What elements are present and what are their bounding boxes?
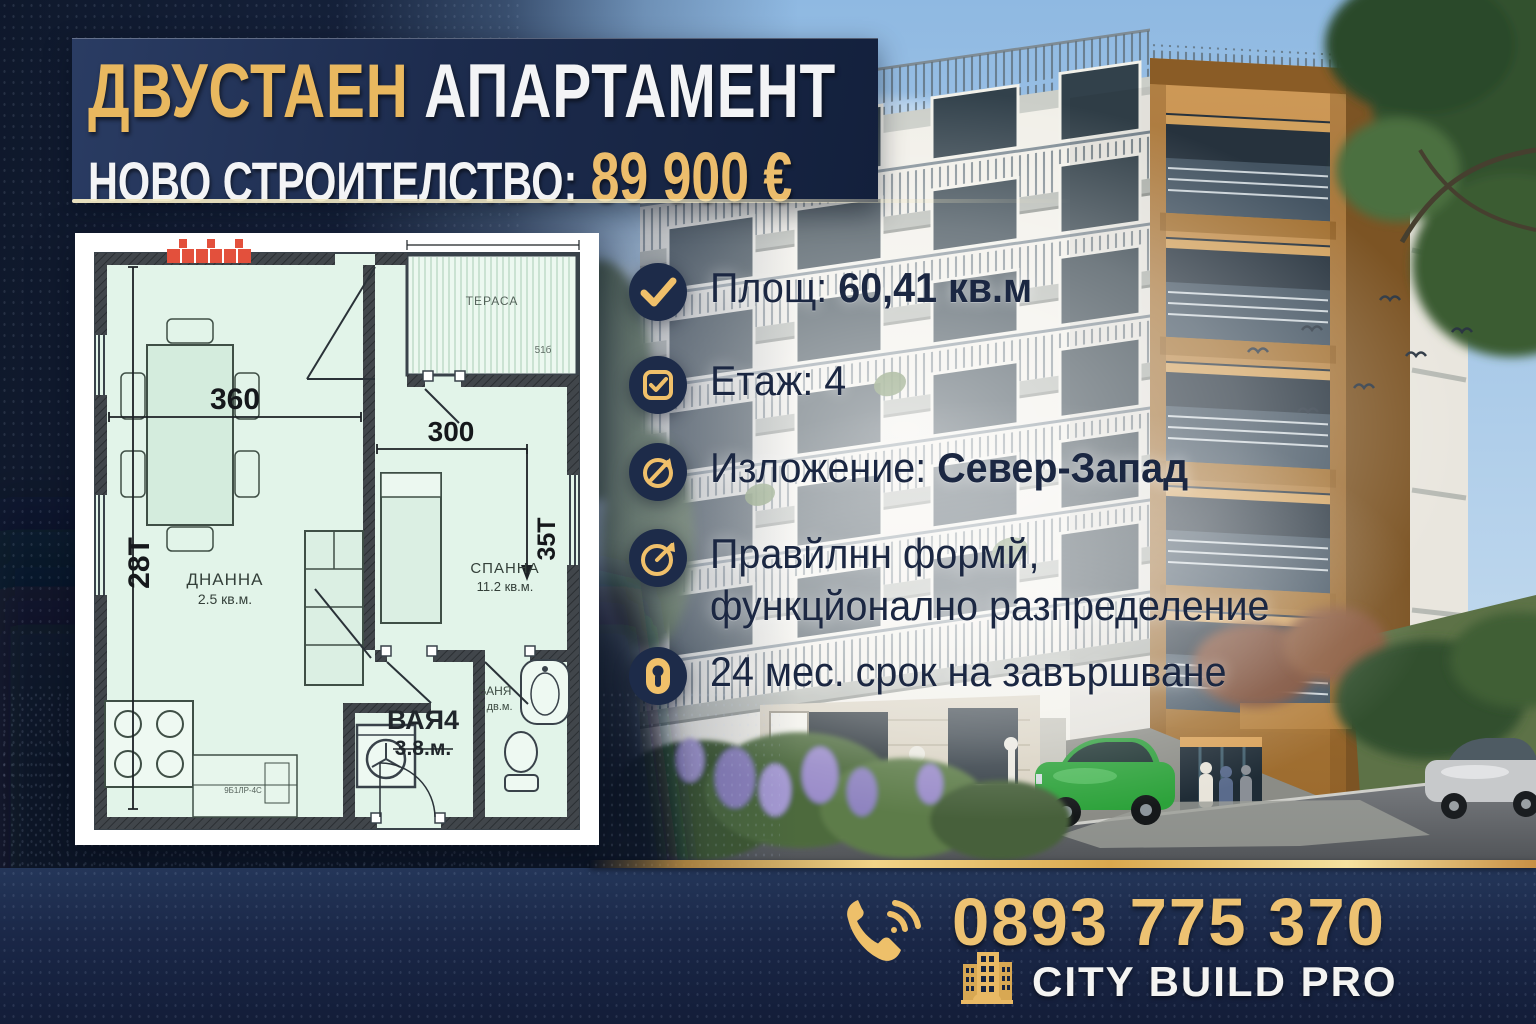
bath-label: БАНЯ — [479, 684, 512, 698]
gold-streak-divider — [72, 199, 1072, 203]
feature-floor-label: Етаж: 4 — [710, 357, 846, 404]
balcony-label: ТЕРАСА — [466, 294, 519, 308]
dim-360: 360 — [210, 383, 260, 416]
company-name: CITY BUILD PRO — [1032, 958, 1398, 1006]
header-band: ДВУСТАЕН АПАРТАМЕНТ НОВО СТРОИТЕЛСТВО: 8… — [72, 38, 878, 202]
sofa — [305, 531, 363, 685]
footer-gold-divider — [590, 860, 1536, 868]
phone-icon — [838, 888, 934, 980]
building-logo-icon — [955, 946, 1019, 1010]
feature-completion: 24 мес. срок на завършване — [628, 646, 1260, 706]
kitchen-code-label: 9Б1ЛР-4С — [224, 786, 262, 795]
feature-exposure: Изложение: Север-Запад — [628, 442, 1219, 502]
feature-exposure-label: Изложение: — [710, 444, 926, 491]
feature-floor: Етаж: 4 — [628, 355, 855, 415]
bedroom-area: 11.2 кв.м. — [477, 579, 534, 594]
bedroom-label: СПАННА — [470, 560, 539, 577]
feature-exposure-value: Север-Запад — [937, 444, 1188, 491]
page-title: ДВУСТАЕН АПАРТАМЕНТ — [88, 49, 696, 135]
real-estate-ad-poster: ДВУСТАЕН АПАРТАМЕНТ НОВО СТРОИТЕЛСТВО: 8… — [0, 0, 1536, 1024]
living-room-label: ДНАННА — [186, 570, 263, 589]
feature-layout-line2: функцйонално разпределение — [710, 580, 1269, 632]
dim-left: 28Т — [123, 537, 156, 589]
checkbox-icon — [628, 355, 688, 415]
compass-icon — [628, 442, 688, 502]
dim-right: 35Т — [533, 517, 561, 560]
balcony-code: 51б — [535, 344, 552, 356]
radiator — [167, 239, 251, 263]
title-highlight: ДВУСТАЕН — [88, 49, 409, 135]
feature-area-label: Площ: — [710, 264, 827, 311]
subtitle-label: НОВО СТРОИТЕЛСТВО: — [88, 149, 577, 214]
feature-layout: Правйлнн формй, функцйонално разпределен… — [628, 528, 1305, 632]
keyhole-icon — [628, 646, 688, 706]
living-room-area: 2.5 кв.м. — [198, 591, 252, 607]
dim-300: 300 — [428, 416, 475, 447]
title-rest: АПАРТАМЕНТ — [424, 49, 836, 135]
hall-label: ВАЯ4 — [387, 705, 459, 735]
bath-area: 2 дв.м. — [477, 701, 512, 713]
feature-area: Площ: 60,41 кв.м — [628, 262, 1053, 322]
check-circle-icon — [628, 262, 688, 322]
feature-area-value: 60,41 кв.м — [838, 264, 1032, 311]
price: 89 900 € — [591, 137, 793, 217]
feature-layout-line1: Правйлнн формй, — [710, 528, 1269, 580]
subtitle: НОВО СТРОИТЕЛСТВО: 89 900 € — [88, 137, 673, 217]
gauge-icon — [628, 528, 688, 588]
floor-plan: ТЕРАСА 51б — [75, 233, 599, 845]
feature-completion-label: 24 мес. срок на завършване — [710, 648, 1227, 695]
bed — [381, 473, 441, 623]
